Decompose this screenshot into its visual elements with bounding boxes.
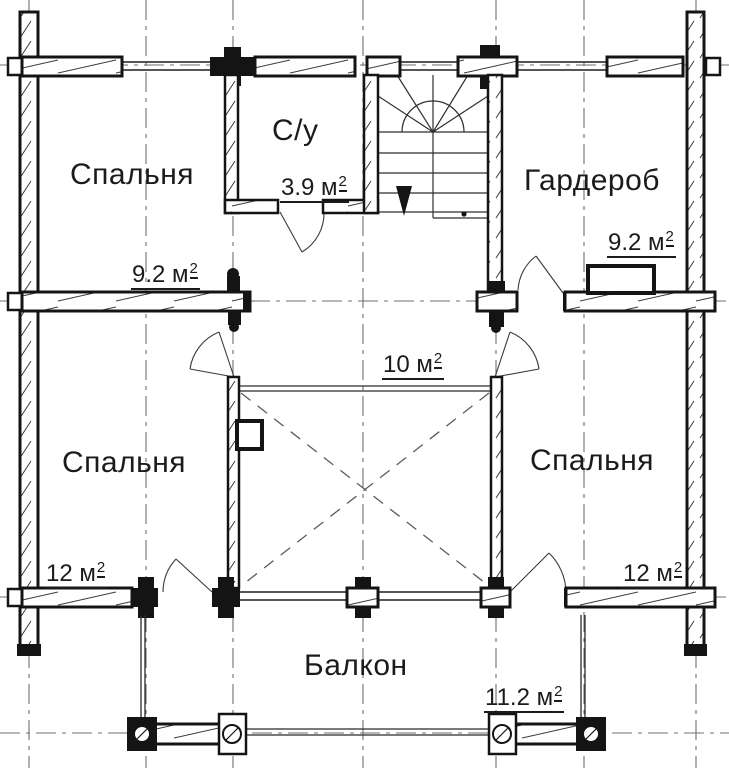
walls-group <box>8 12 720 656</box>
area-label-bedroom-bottom-left: 12 м2 <box>45 560 107 589</box>
area-label-wardrobe: 9.2 м2 <box>607 229 676 258</box>
stairs-group <box>378 75 488 218</box>
room-label-bedroom-bottom-right: Спальня <box>530 446 654 476</box>
area-value: 11.2 м <box>485 684 553 711</box>
wardrobe-cabinet <box>588 266 654 293</box>
area-sup: 2 <box>434 350 442 369</box>
area-label-hall: 10 м2 <box>382 351 444 380</box>
room-label-bedroom-top-left: Спальня <box>70 160 194 190</box>
area-value: 3.9 м <box>281 174 338 201</box>
area-sup: 2 <box>666 228 674 247</box>
area-label-bedroom-bottom-right: 12 м2 <box>622 560 684 589</box>
area-label-bedroom-top-left: 9.2 м2 <box>131 261 200 290</box>
room-label-balcony: Балкон <box>304 651 408 681</box>
area-label-balcony: 11.2 м2 <box>484 684 564 713</box>
area-sup: 2 <box>97 559 105 578</box>
area-value: 12 м <box>46 560 96 587</box>
room-label-bathroom: С/у <box>272 116 319 146</box>
area-value: 10 м <box>383 351 433 378</box>
area-sup: 2 <box>674 559 682 578</box>
furniture-group <box>237 266 654 449</box>
room-label-bedroom-bottom-left: Спальня <box>62 448 186 478</box>
area-sup: 2 <box>190 260 198 279</box>
area-label-bathroom: 3.9 м2 <box>280 174 349 203</box>
area-sup: 2 <box>554 683 562 702</box>
hall-void-group <box>239 386 491 586</box>
hall-flue-block <box>237 421 262 449</box>
room-label-wardrobe: Гардероб <box>524 166 660 196</box>
floor-plan-page: Спальня 9.2 м2 С/у 3.9 м2 Гардероб 9.2 м… <box>0 0 729 768</box>
doors-group <box>163 212 566 592</box>
area-value: 12 м <box>623 560 673 587</box>
area-sup: 2 <box>339 173 347 192</box>
area-value: 9.2 м <box>132 261 189 288</box>
area-value: 9.2 м <box>608 229 665 256</box>
